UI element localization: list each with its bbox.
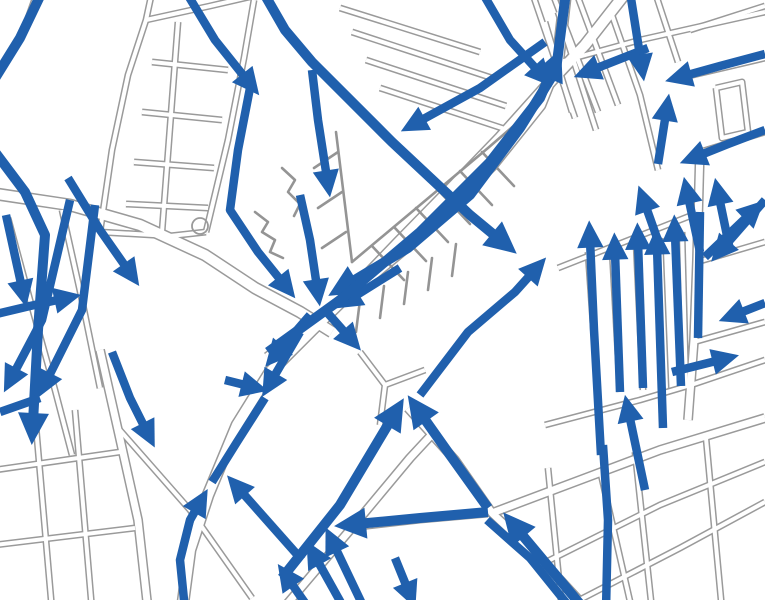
street-casing [100,0,152,232]
flow-arrowhead-icon [18,412,49,445]
street-fill [162,22,178,232]
street-fill [560,502,765,600]
street-fill [75,410,92,600]
flow-arrow [698,212,700,338]
flow-arrow [675,234,681,386]
street-line [452,244,456,276]
street-fill [0,528,135,545]
flow-arrow [357,512,488,524]
street-line [404,272,408,304]
flow-arrow [482,0,539,72]
flow-arrowhead-icon [635,186,660,216]
flow-arrow [420,272,533,395]
flow-arrowhead-icon [577,220,603,248]
flow-arrow [658,113,666,164]
flow-arrowhead-icon [303,278,329,307]
flow-arrow [268,70,552,352]
flow-arrowhead-icon [652,94,678,123]
street-fill [380,88,520,134]
street-fill [0,452,120,470]
flow-arrow [312,70,327,178]
flow-arrowhead-icon [313,168,339,197]
flow-arrow [590,240,601,455]
flow-arrowhead-icon [708,178,734,207]
street-line [282,168,300,216]
flow-arrow [421,414,488,508]
flow-arrow [615,252,620,392]
street-fill [706,438,722,600]
street-line [428,258,432,290]
street-fill [352,32,492,78]
flow-arrow [300,195,317,287]
street-fill [340,8,480,52]
flow-arrowhead-icon [665,61,695,86]
street-fill [385,370,425,385]
flow-arrow [0,0,42,80]
flow-arrow [638,242,643,388]
street-fill [694,322,765,342]
street-line [380,286,384,318]
traffic-flow-map[interactable] [0,0,765,600]
flow-arrow [684,54,765,76]
flow-arrow [240,490,302,560]
flow-arrow [657,247,663,428]
flow-arrow [603,445,608,600]
street-line [322,232,346,248]
street-fill [35,415,52,600]
flow-map-canvas [0,0,765,600]
